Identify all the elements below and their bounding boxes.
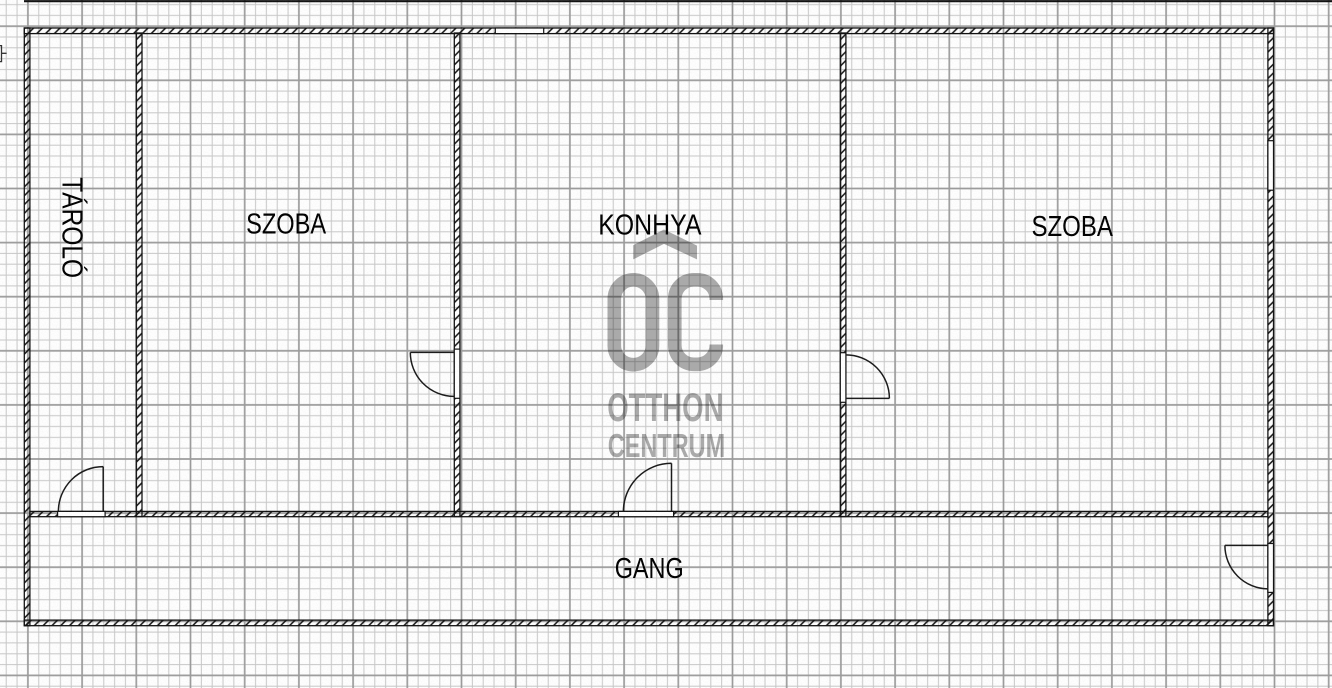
svg-text:TÁROLÓ: TÁROLÓ	[56, 177, 88, 278]
svg-text:SZOBA: SZOBA	[246, 209, 326, 241]
svg-text:OTTHON: OTTHON	[607, 386, 723, 430]
svg-text:GANG: GANG	[615, 553, 684, 585]
svg-text:KONHYA: KONHYA	[598, 210, 701, 242]
svg-text:SZOBA: SZOBA	[1032, 211, 1113, 243]
svg-text:CENTRUM: CENTRUM	[608, 427, 725, 465]
